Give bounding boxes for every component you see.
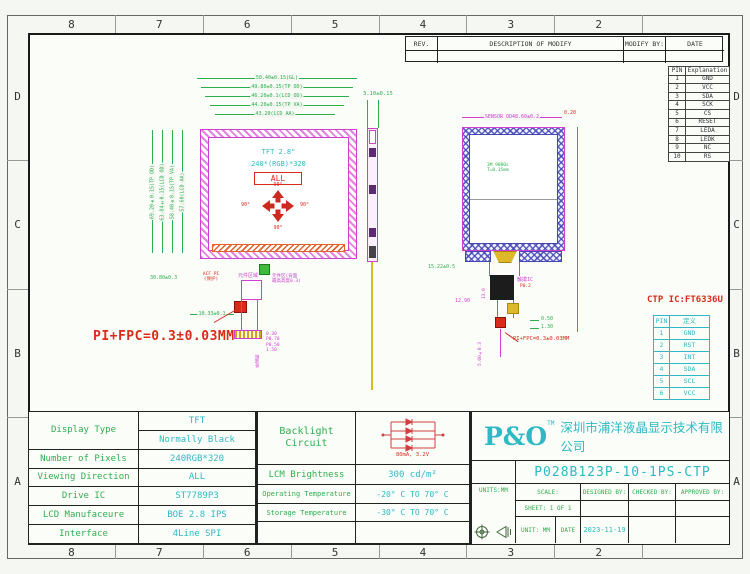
ctp-pin-row: 4SDA	[654, 364, 710, 376]
part-number-row: P028B123P-10-1PS-CTP	[472, 461, 729, 484]
zone-label	[643, 15, 730, 33]
trademark-symbol: TM	[547, 412, 554, 427]
operating-temp-value: -20° C TO 70° C	[356, 485, 470, 504]
dimension-label: 57.60(LCD AA)	[181, 171, 186, 212]
zone-strip-right: D C B A	[730, 33, 743, 545]
spec-manufacturer-value: BOE 2.8 IPS	[139, 506, 256, 525]
fpc-tail-edge	[489, 262, 490, 276]
dimension-label: 44.20±0.15(TP VA)	[250, 103, 303, 109]
viewing-direction-cross-icon	[260, 188, 296, 224]
back-view-divider	[470, 199, 557, 200]
lcd-back-view	[462, 127, 565, 251]
component-back-annotation: 元件区(背面最高高度0.3)	[272, 274, 301, 285]
pin-row: 2VCC	[669, 84, 730, 93]
component-area-box	[241, 280, 262, 300]
zone-label: A	[7, 418, 28, 545]
pin-explanation-table: PIN Explanation 1GND 2VCC 3SDA 4SCK 5CS …	[668, 66, 730, 162]
dimension-label: 15.22±0.5	[428, 264, 455, 270]
zone-label: 6	[204, 545, 292, 559]
fpc-bonding-strip	[212, 244, 345, 252]
panel-type-label: TFT 2.8"	[210, 148, 347, 156]
revision-empty-cell	[406, 51, 438, 63]
fpc-tail-edge	[241, 300, 242, 330]
extension-line	[378, 100, 379, 128]
zone-label: C	[7, 161, 28, 289]
ctp-pin-table: PIN 定义 1GND 2RST 3INT 4SDA 5SCL 6VCC	[653, 315, 710, 400]
pi-fpc-note: PI+FPC=0.3±0.03MM	[93, 329, 235, 344]
zone-label: D	[730, 33, 743, 161]
spec-display-type-value2: Normally Black	[139, 431, 256, 450]
zone-label: 4	[380, 15, 468, 33]
dimension-label: 63.84±0.15(LCD OD)	[161, 162, 166, 221]
empty-cell	[676, 517, 729, 543]
dimension-label: 0.50	[541, 316, 553, 322]
ctp-pin-row: 1GND	[654, 328, 710, 340]
zone-label: 6	[204, 15, 292, 33]
approved-by-label: APPROVED BY:	[676, 484, 729, 501]
zone-label: 7	[116, 545, 204, 559]
company-name: 深圳市浦洋液晶显示技术有限公司	[554, 417, 729, 455]
tape-annotation: 3M 9080sT=0.15mm	[487, 163, 509, 174]
dimension-label: 43.20(LCD AA)	[254, 112, 295, 118]
pin-row: 5CS	[669, 109, 730, 118]
side-view-block	[369, 185, 376, 194]
dimension-label: 5.00±0.3	[479, 336, 484, 366]
checked-by-value	[629, 501, 676, 517]
revision-empty-cell	[624, 51, 666, 63]
revision-col-date: DATE	[666, 37, 724, 51]
zone-label: B	[730, 290, 743, 418]
viewing-angle-bottom: 90°	[266, 225, 290, 231]
spec-display-type-label: Display Type	[29, 412, 139, 450]
dimension-label: 13.0	[483, 277, 488, 299]
checked-by-label: CHECKED BY:	[629, 484, 676, 501]
zone-label: B	[7, 290, 28, 418]
dimension: SENSOR OD48.60±0.2	[462, 117, 562, 118]
backlight-connector	[507, 303, 519, 314]
operating-temp-label: Operating Temperature	[258, 485, 356, 504]
pin-row: 3SDA	[669, 92, 730, 101]
component-green-pad	[259, 264, 270, 275]
zone-label: 8	[28, 545, 116, 559]
empty-cell	[629, 517, 676, 543]
storage-temp-value: -30° C TO 70° C	[356, 504, 470, 522]
zone-label: C	[730, 161, 743, 289]
dimension-label: P0.2	[520, 284, 531, 289]
spec-manufacturer-label: LCD Manufaceure	[29, 506, 139, 525]
side-view-block	[369, 228, 376, 237]
fpc-pitch-dimensions: 0.30 P0.70 P0.50 1.50	[266, 332, 280, 354]
backlight-circuit-label: Backlight Circuit	[258, 412, 356, 465]
pin-row: 1GND	[669, 75, 730, 84]
dimension-label: 49.80±0.15(TP OD)	[250, 85, 303, 91]
ctp-pin-row: 2RST	[654, 340, 710, 352]
dimension-label: 69.20±0.15(TP OD)	[151, 163, 156, 219]
unit-date-cell: UNIT: MM DATE	[516, 517, 581, 543]
dimension-label: 12.90	[455, 298, 470, 304]
empty-cell	[472, 461, 516, 483]
zone-label: D	[7, 33, 28, 161]
zone-label: A	[730, 418, 743, 545]
spec-drive-ic-label: Drive IC	[29, 487, 139, 506]
units-label: UNITS:MM	[479, 487, 508, 494]
zone-strip-top: 8 7 6 5 4 3 2	[28, 15, 730, 33]
designed-by-value	[581, 501, 629, 517]
touch-controller-ic	[490, 275, 514, 300]
fpc-tail-edge	[500, 329, 501, 357]
projection-symbol-icon	[474, 524, 514, 540]
empty-cell	[258, 522, 356, 544]
explanation-col-header: Explanation	[686, 67, 730, 76]
fpc-tail-edge	[519, 262, 520, 276]
pin-table-header: PIN Explanation	[669, 67, 730, 76]
extension-line	[367, 100, 368, 128]
dimension: 58.40±0.15(TP VA)	[172, 130, 173, 253]
storage-temp-label: Storage Temperature	[258, 504, 356, 522]
panel-resolution-label: 240*(RGB)*320	[210, 160, 347, 168]
fpc-connector-fingers	[234, 330, 262, 339]
component-area-annotation: 元件区域	[238, 272, 258, 279]
dimension-line	[577, 127, 578, 332]
led-rating-label: 80mA, 3.2V	[396, 452, 429, 458]
empty-cell	[356, 522, 470, 544]
unit-label: UNIT: MM	[516, 517, 556, 543]
fpc-side-profile	[371, 262, 373, 390]
logo-row: P&O TM 深圳市浦洋液晶显示技术有限公司	[472, 412, 729, 461]
back-view-inner	[469, 134, 558, 244]
led-circuit-icon	[381, 418, 445, 452]
viewing-angle-top: 90°	[266, 182, 290, 188]
dimension: 46.20±0.1(LCD OD)	[205, 96, 349, 97]
spec-interface-value: 4Line SPI	[139, 525, 256, 544]
ctp-ic-title: CTP IC:FT6336U	[647, 295, 723, 305]
spec-pixels-label: Number of Pixels	[29, 450, 139, 469]
fpc-shoulder-left	[465, 251, 491, 262]
zone-label: 7	[116, 15, 204, 33]
side-view-block	[369, 246, 376, 258]
revision-col-desc: DESCRIPTION OF MODIFY	[438, 37, 624, 51]
pin-row: 7LEDA	[669, 127, 730, 136]
brightness-label: LCM Brightness	[258, 465, 356, 485]
drawing-sheet: 8 7 6 5 4 3 2 8 7 6 5 4 3 2 D C B A D C …	[0, 0, 750, 574]
pin-row: 8LEDK	[669, 135, 730, 144]
approved-by-value	[676, 501, 729, 517]
revision-empty-cell	[666, 51, 724, 63]
fpc-shoulder-right	[519, 251, 562, 262]
zone-label	[643, 545, 730, 559]
revision-col-rev: REV.	[406, 37, 438, 51]
acf-annotation: ACF PI(保护)	[200, 272, 222, 283]
spec-display-type-value1: TFT	[139, 412, 256, 431]
zone-label: 4	[380, 545, 468, 559]
company-logo: P&O	[472, 422, 547, 451]
fpc-tail-edge	[497, 300, 498, 318]
date-label: DATE	[556, 517, 580, 543]
zone-strip-bottom: 8 7 6 5 4 3 2	[28, 545, 730, 559]
dimension-tick	[530, 328, 539, 329]
zone-label: 2	[555, 15, 643, 33]
pin-col-header: PIN	[669, 67, 686, 76]
side-view-block	[369, 148, 376, 157]
designed-by-label: DESIGNED BY:	[581, 484, 629, 501]
brightness-value: 300 cd/m²	[356, 465, 470, 485]
fpc-end-stiffener	[495, 317, 506, 328]
ctp-table-header: PIN 定义	[654, 316, 710, 328]
dimension: 44.20±0.15(TP VA)	[210, 105, 344, 106]
spec-interface-label: Interface	[29, 525, 139, 544]
zone-label: 8	[28, 15, 116, 33]
sheet-label: SHEET: 1 OF 1	[516, 501, 581, 517]
spec-viewing-label: Viewing Direction	[29, 469, 139, 488]
revision-empty-cell	[438, 51, 624, 63]
revision-table: REV. DESCRIPTION OF MODIFY MODIFY BY: DA…	[405, 36, 723, 62]
stiffener-annotation: 补强板	[256, 344, 261, 368]
dimension: 50.40±0.15(GL)	[197, 78, 357, 79]
pin-row: 10RS	[669, 152, 730, 161]
zone-label: 5	[292, 545, 380, 559]
pi-fpc-note-back: PI+FPC=0.3±0.03MM	[513, 336, 569, 342]
spec-viewing-value: ALL	[139, 469, 256, 488]
title-block-grid: UNITS:MM SCALE: DESIGNED BY: CHECKED BY:…	[472, 484, 729, 543]
dimension-label: SENSOR OD48.60±0.2	[484, 115, 540, 121]
dimension-label: 0.20	[564, 110, 576, 116]
ctp-pin-row: 5SCL	[654, 376, 710, 388]
ctp-pin-row: 6VCC	[654, 388, 710, 400]
spec-drive-ic-value: ST7789P3	[139, 487, 256, 506]
viewing-angle-right: 90°	[300, 202, 309, 208]
viewing-angle-left: 90°	[241, 202, 250, 208]
fpc-tail-edge	[257, 300, 258, 330]
zone-strip-left: D C B A	[7, 33, 28, 545]
date-value: 2023-11-19	[581, 517, 629, 543]
dimension: 69.20±0.15(TP OD)	[152, 130, 153, 253]
dimension-label: 1.30	[541, 324, 553, 330]
units-cell: UNITS:MM	[472, 484, 516, 543]
dimension: 63.84±0.15(LCD OD)	[162, 130, 163, 253]
part-number: P028B123P-10-1PS-CTP	[516, 461, 729, 483]
dimension: 57.60(LCD AA)	[182, 130, 183, 253]
dimension-label: 58.40±0.15(TP VA)	[171, 163, 176, 219]
scale-label: SCALE:	[516, 484, 581, 501]
spec-table: Display Type TFT Normally Black Number o…	[28, 411, 257, 545]
zone-label: 3	[467, 545, 555, 559]
environment-table: Backlight Circuit 80mA, 3.2V LCM Brightn…	[257, 411, 471, 545]
zone-label: 5	[292, 15, 380, 33]
dimension: 43.20(LCD AA)	[215, 114, 335, 115]
ctp-pin-row: 3INT	[654, 352, 710, 364]
title-block: P&O TM 深圳市浦洋液晶显示技术有限公司 P028B123P-10-1PS-…	[471, 411, 730, 545]
zone-label: 2	[555, 545, 643, 559]
dimension-label: 50.40±0.15(GL)	[255, 76, 299, 82]
pin-row: 4SCK	[669, 101, 730, 110]
backlight-circuit-diagram: 80mA, 3.2V	[356, 412, 470, 465]
thickness-dimension-label: 3.10±0.15	[363, 91, 393, 97]
side-view-glass-cap	[369, 130, 376, 144]
pin-row: 6RESET	[669, 118, 730, 127]
dimension: 49.80±0.15(TP OD)	[201, 87, 353, 88]
revision-col-by: MODIFY BY:	[624, 37, 666, 51]
dimension-label: 30.80±0.3	[150, 275, 177, 281]
zone-label: 3	[467, 15, 555, 33]
dimension-tick	[530, 320, 539, 321]
touch-ic-annotation: 触摸IC	[517, 276, 533, 283]
pin-row: 9NC	[669, 144, 730, 153]
dimension-label: 46.20±0.1(LCD OD)	[250, 94, 303, 100]
spec-pixels-value: 240RGB*320	[139, 450, 256, 469]
